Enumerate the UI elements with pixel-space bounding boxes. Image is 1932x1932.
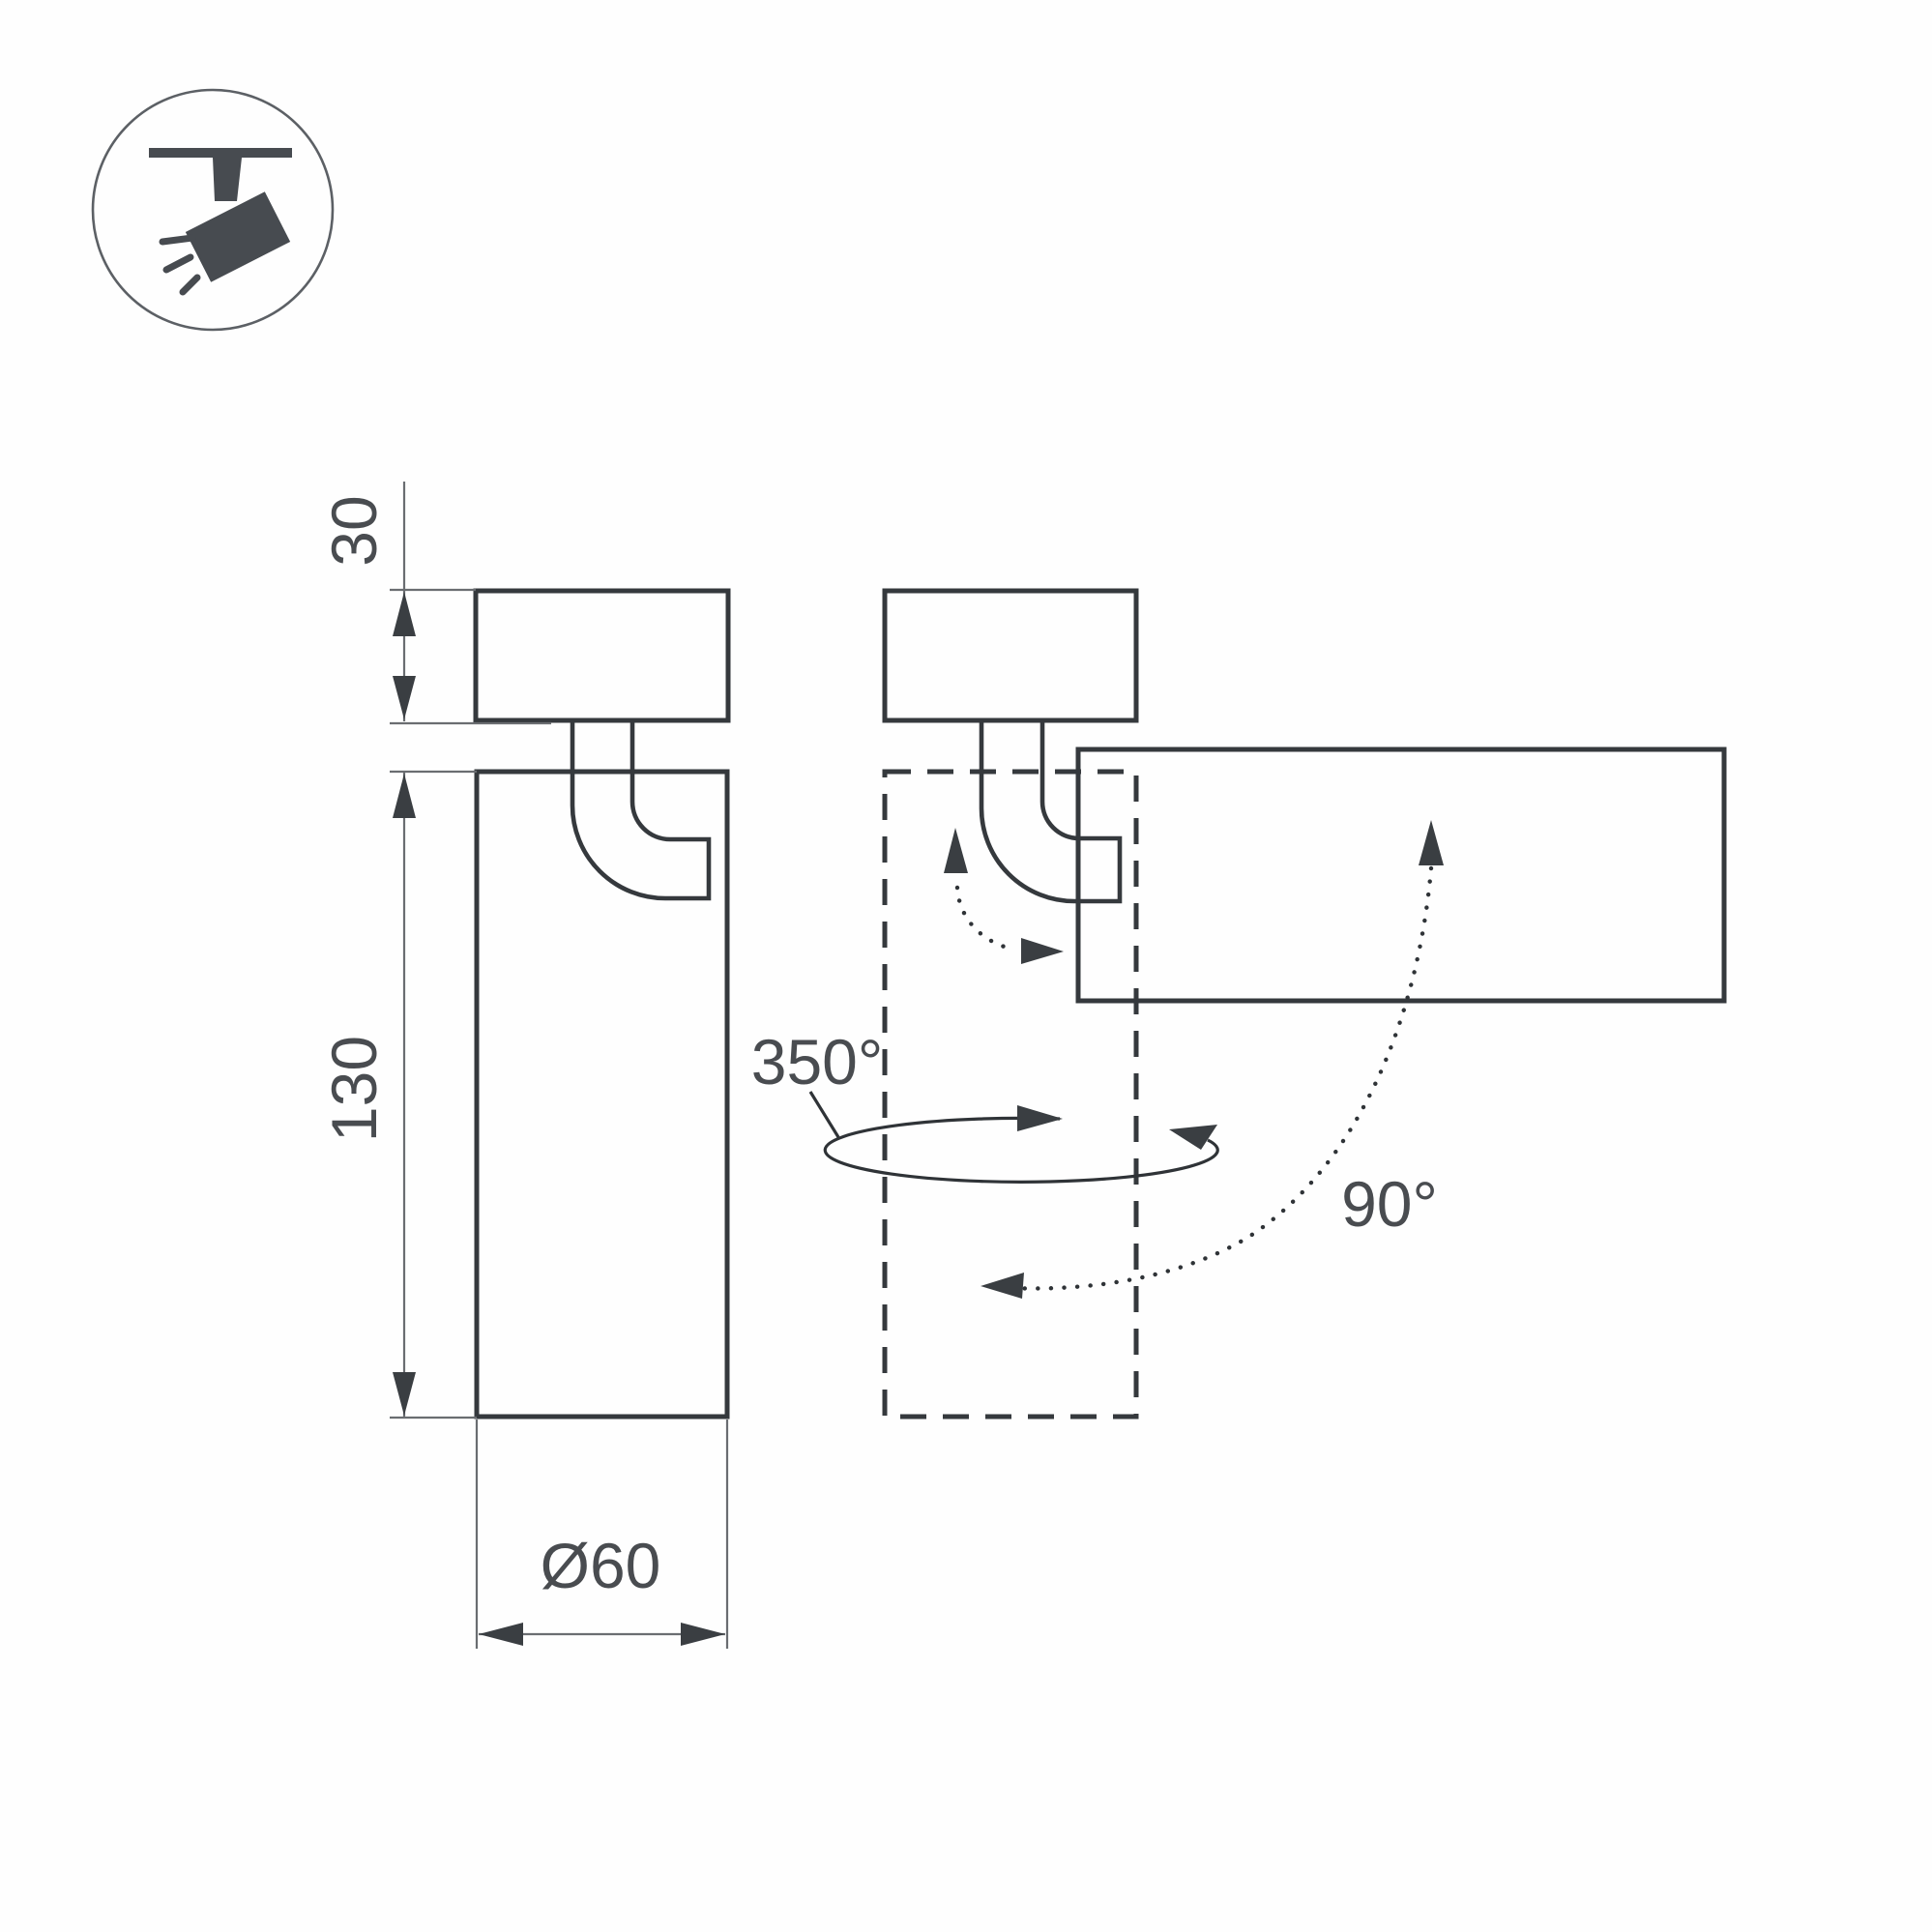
dimension-arrow-right	[681, 1623, 725, 1646]
icon-ceiling-bar	[149, 148, 292, 158]
dimension-arrow-down	[393, 676, 416, 719]
swivel-yoke-outline	[572, 720, 709, 898]
swivel-350-indicator: 350°	[751, 1026, 1218, 1182]
dimension-mount-height: 30	[318, 482, 551, 723]
dimension-arrow-left	[479, 1623, 523, 1646]
ceiling-track-spotlight-icon	[93, 90, 333, 330]
mounting-base-outline	[885, 591, 1136, 720]
tilt-90-indicator: 90°	[981, 820, 1444, 1299]
tilt-arrow-right	[1021, 938, 1064, 964]
dimension-arrow-up	[393, 592, 416, 636]
dimension-arrow-down	[393, 1372, 416, 1416]
icon-lamp-head	[186, 191, 290, 281]
icon-stem	[213, 158, 242, 201]
dimension-diameter: Ø60	[477, 1420, 727, 1649]
icon-light-ray	[162, 238, 192, 242]
tilt-arrow-left	[981, 1273, 1024, 1299]
front-view	[476, 591, 728, 1417]
dimension-drawing: 30 130 Ø60	[0, 0, 1932, 1932]
dimension-arrow-up	[393, 774, 416, 818]
swivel-arrow-cw	[1017, 1105, 1063, 1131]
icon-circle	[93, 90, 333, 330]
dimension-label-30: 30	[318, 495, 390, 566]
cylinder-body-outline	[477, 772, 727, 1417]
body-tilted-outline	[1078, 749, 1724, 1001]
icon-light-ray	[166, 257, 190, 270]
dimension-body-length: 130	[318, 772, 477, 1418]
body-phantom-outline	[885, 772, 1136, 1417]
icon-light-ray	[183, 278, 197, 292]
dimension-label-130: 130	[318, 1036, 390, 1142]
tilt-angle-label: 90°	[1341, 1168, 1438, 1240]
tilt-arrow-up	[944, 828, 968, 873]
rotation-view: 350° 90°	[751, 591, 1724, 1417]
swivel-angle-label: 350°	[751, 1026, 884, 1098]
leader-line	[810, 1092, 838, 1137]
mounting-base-outline	[476, 591, 728, 720]
dimension-label-diameter: Ø60	[541, 1530, 661, 1601]
drawing-page: 30 130 Ø60	[0, 0, 1932, 1932]
swivel-arrow-ccw	[1169, 1125, 1217, 1150]
tilt-arrow-up	[1419, 820, 1444, 865]
